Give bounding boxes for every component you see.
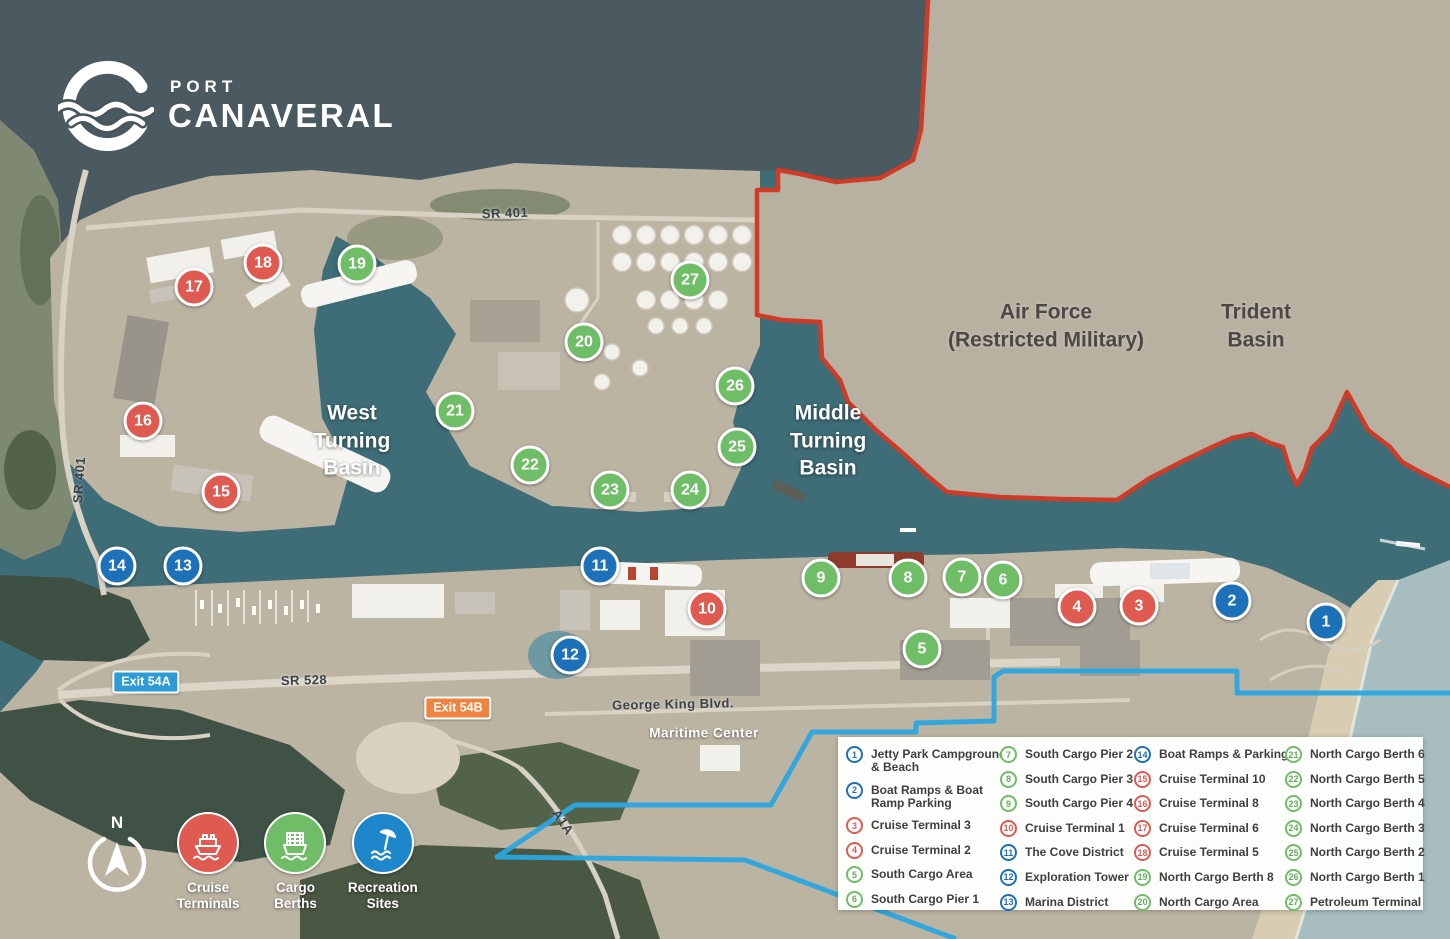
legend-entry-23: 23North Cargo Berth 4	[1285, 797, 1425, 812]
brand-word-canaveral: CANAVERAL	[168, 99, 395, 132]
legend-number-ring: 2	[846, 782, 863, 799]
map-marker-25[interactable]: 25	[718, 428, 757, 467]
legend-entry-label: North Cargo Area	[1151, 896, 1259, 909]
legend-entry-label: North Cargo Berth 3	[1302, 822, 1425, 835]
legend-entry-label: South Cargo Pier 2	[1017, 748, 1133, 761]
legend-entry-label: North Cargo Berth 2	[1302, 846, 1425, 859]
legend-number-ring: 7	[1000, 746, 1017, 763]
map-marker-13[interactable]: 13	[164, 547, 203, 586]
legend-number-ring: 10	[1000, 820, 1017, 837]
maritime-center-label: Maritime Center	[649, 726, 759, 741]
map-marker-2[interactable]: 2	[1213, 582, 1252, 621]
legend-entry-21: 21North Cargo Berth 6	[1285, 748, 1425, 763]
legend-entry-11: 11The Cove District	[1000, 846, 1133, 861]
legend-entry-3: 3Cruise Terminal 3	[846, 819, 1006, 834]
key-label-cargo-berths: Cargo Berths	[260, 880, 330, 911]
legend-entry-25: 25North Cargo Berth 2	[1285, 846, 1425, 861]
west-turning-basin-label: West Turning Basin	[314, 399, 391, 482]
legend-entry-1: 1Jetty Park Campground& Beach	[846, 748, 1006, 774]
port-canaveral-map: ® PORT CANAVERAL West Turning Basin Midd…	[0, 0, 1450, 939]
legend-entry-label: Cruise Terminal 6	[1151, 822, 1259, 835]
legend-number-ring: 1	[846, 746, 863, 763]
legend-entry-14: 14Boat Ramps & Parking	[1134, 748, 1288, 763]
legend-number-ring: 11	[1000, 844, 1017, 861]
compass-n-label: N	[111, 813, 123, 832]
legend-entry-5: 5South Cargo Area	[846, 868, 1006, 883]
map-marker-23[interactable]: 23	[591, 471, 630, 510]
legend-entry-26: 26North Cargo Berth 1	[1285, 871, 1425, 886]
map-marker-10[interactable]: 10	[688, 590, 727, 629]
legend-entry-label: Cruise Terminal 3	[863, 819, 971, 832]
legend-number-ring: 12	[1000, 869, 1017, 886]
legend-entry-label: The Cove District	[1017, 846, 1124, 859]
map-marker-26[interactable]: 26	[716, 367, 755, 406]
map-marker-12[interactable]: 12	[551, 636, 590, 675]
legend-entry-22: 22North Cargo Berth 5	[1285, 773, 1425, 788]
map-marker-22[interactable]: 22	[511, 446, 550, 485]
key-label-cruise-terminals: Cruise Terminals	[173, 880, 243, 911]
map-marker-1[interactable]: 1	[1307, 603, 1346, 642]
legend-entry-label: North Cargo Berth 6	[1302, 748, 1425, 761]
key-item-cruise-terminals: Cruise Terminals	[173, 812, 243, 911]
legend-entry-label: Petroleum Terminal	[1302, 896, 1421, 909]
legend-number-ring: 17	[1134, 820, 1151, 837]
port-canaveral-logo: ® PORT CANAVERAL	[58, 60, 438, 150]
legend-number-ring: 26	[1285, 869, 1302, 886]
map-key: N Cruise Terminals Cargo Berths	[78, 812, 418, 927]
legend-entry-13: 13Marina District	[1000, 896, 1133, 911]
map-marker-18[interactable]: 18	[244, 244, 283, 283]
legend-number-ring: 5	[846, 866, 863, 883]
legend-column-3: 14Boat Ramps & Parking15Cruise Terminal …	[1134, 748, 1288, 911]
legend-entry-label: Marina District	[1017, 896, 1108, 909]
legend-number-ring: 9	[1000, 795, 1017, 812]
legend-entry-10: 10Cruise Terminal 1	[1000, 822, 1133, 837]
legend-entry-label: Cruise Terminal 2	[863, 844, 971, 857]
legend-entry-27: 27Petroleum Terminal	[1285, 896, 1425, 911]
legend-entry-24: 24North Cargo Berth 3	[1285, 822, 1425, 837]
legend-column-1: 1Jetty Park Campground& Beach2Boat Ramps…	[846, 748, 1006, 908]
key-label-recreation-sites: Recreation Sites	[348, 880, 418, 911]
legend-entry-8: 8South Cargo Pier 3	[1000, 773, 1133, 788]
legend-entry-label: North Cargo Berth 5	[1302, 773, 1425, 786]
legend-entry-18: 18Cruise Terminal 5	[1134, 846, 1288, 861]
legend-number-ring: 23	[1285, 795, 1302, 812]
middle-turning-basin-label: Middle Turning Basin	[790, 399, 867, 482]
legend-number-ring: 21	[1285, 746, 1302, 763]
trident-basin-label: Trident Basin	[1221, 298, 1291, 353]
wave-c-logo-icon: ®	[58, 59, 154, 151]
map-marker-9[interactable]: 9	[802, 559, 841, 598]
legend-entry-20: 20North Cargo Area	[1134, 896, 1288, 911]
compass-north-icon: N	[78, 806, 156, 910]
legend-number-ring: 19	[1134, 869, 1151, 886]
legend-number-ring: 8	[1000, 771, 1017, 788]
map-marker-14[interactable]: 14	[98, 547, 137, 586]
map-marker-21[interactable]: 21	[436, 392, 475, 431]
exit-54a-badge: Exit 54A	[112, 671, 179, 694]
map-marker-27[interactable]: 27	[671, 261, 710, 300]
legend-entry-label: North Cargo Berth 1	[1302, 871, 1425, 884]
legend-entry-15: 15Cruise Terminal 10	[1134, 773, 1288, 788]
legend-number-ring: 14	[1134, 746, 1151, 763]
legend-entry-label: North Cargo Berth 4	[1302, 797, 1425, 810]
legend-entry-4: 4Cruise Terminal 2	[846, 844, 1006, 859]
map-marker-4[interactable]: 4	[1058, 588, 1097, 627]
cruise-ship-icon	[177, 812, 239, 874]
legend-entry-label: Cruise Terminal 8	[1151, 797, 1259, 810]
legend-entry-19: 19North Cargo Berth 8	[1134, 871, 1288, 886]
sr528-label: SR 528	[281, 672, 328, 688]
legend-number-ring: 20	[1134, 894, 1151, 911]
map-marker-5[interactable]: 5	[903, 630, 942, 669]
legend-entry-label: South Cargo Pier 3	[1017, 773, 1133, 786]
legend-number-ring: 18	[1134, 844, 1151, 861]
legend-entry-label: Boat Ramps & Parking	[1151, 748, 1288, 761]
map-marker-7[interactable]: 7	[943, 558, 982, 597]
legend-entry-12: 12Exploration Tower	[1000, 871, 1133, 886]
map-marker-3[interactable]: 3	[1120, 587, 1159, 626]
exit-54b-badge: Exit 54B	[424, 697, 491, 720]
legend-entry-label: South Cargo Pier 1	[863, 893, 979, 906]
legend-entry-label: South Cargo Area	[863, 868, 973, 881]
george-king-blvd-label: George King Blvd.	[612, 695, 734, 712]
map-marker-8[interactable]: 8	[889, 559, 928, 598]
legend-number-ring: 25	[1285, 844, 1302, 861]
legend-panel: 1Jetty Park Campground& Beach2Boat Ramps…	[838, 737, 1423, 910]
legend-number-ring: 24	[1285, 820, 1302, 837]
map-marker-6[interactable]: 6	[984, 561, 1023, 600]
legend-entry-16: 16Cruise Terminal 8	[1134, 797, 1288, 812]
map-marker-20[interactable]: 20	[565, 323, 604, 362]
map-marker-16[interactable]: 16	[124, 402, 163, 441]
legend-entry-label: Jetty Park Campground& Beach	[863, 748, 1006, 774]
legend-entry-6: 6South Cargo Pier 1	[846, 893, 1006, 908]
legend-column-2: 7South Cargo Pier 28South Cargo Pier 39S…	[1000, 748, 1133, 911]
map-marker-11[interactable]: 11	[581, 547, 620, 586]
sr401-left-label: SR 401	[70, 456, 88, 503]
brand-word-port: PORT	[170, 78, 395, 95]
legend-number-ring: 27	[1285, 894, 1302, 911]
legend-number-ring: 15	[1134, 771, 1151, 788]
sr401-top-label: SR 401	[482, 205, 529, 222]
key-item-recreation-sites: Recreation Sites	[348, 812, 418, 911]
legend-entry-label: Cruise Terminal 5	[1151, 846, 1259, 859]
legend-column-4: 21North Cargo Berth 622North Cargo Berth…	[1285, 748, 1425, 911]
legend-entry-label: Cruise Terminal 10	[1151, 773, 1266, 786]
legend-entry-label: Cruise Terminal 1	[1017, 822, 1125, 835]
air-force-restricted-label: Air Force (Restricted Military)	[948, 298, 1144, 353]
map-marker-24[interactable]: 24	[671, 471, 710, 510]
map-marker-17[interactable]: 17	[175, 268, 214, 307]
key-item-cargo-berths: Cargo Berths	[260, 812, 330, 911]
beach-umbrella-icon	[352, 812, 414, 874]
legend-number-ring: 3	[846, 817, 863, 834]
legend-number-ring: 4	[846, 842, 863, 859]
legend-number-ring: 6	[846, 891, 863, 908]
map-marker-15[interactable]: 15	[202, 473, 241, 512]
legend-entry-9: 9South Cargo Pier 4	[1000, 797, 1133, 812]
registered-mark: ®	[112, 141, 118, 150]
legend-entry-label: Exploration Tower	[1017, 871, 1129, 884]
legend-entry-2: 2Boat Ramps & BoatRamp Parking	[846, 784, 1006, 810]
legend-entry-label: South Cargo Pier 4	[1017, 797, 1133, 810]
legend-number-ring: 16	[1134, 795, 1151, 812]
legend-entry-label: Boat Ramps & BoatRamp Parking	[863, 784, 983, 810]
legend-number-ring: 22	[1285, 771, 1302, 788]
map-marker-19[interactable]: 19	[338, 245, 377, 284]
legend-entry-7: 7South Cargo Pier 2	[1000, 748, 1133, 763]
legend-number-ring: 13	[1000, 894, 1017, 911]
cargo-ship-icon	[264, 812, 326, 874]
legend-entry-label: North Cargo Berth 8	[1151, 871, 1274, 884]
legend-entry-17: 17Cruise Terminal 6	[1134, 822, 1288, 837]
